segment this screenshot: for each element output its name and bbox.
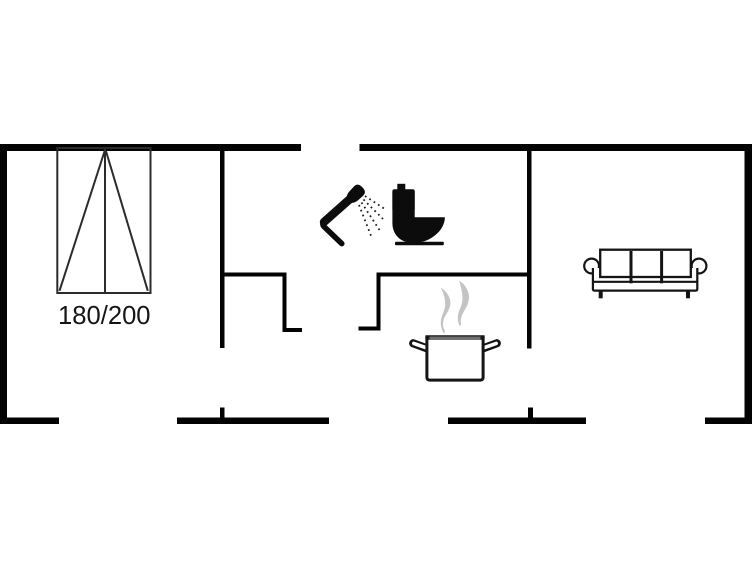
svg-text:180/200: 180/200 <box>58 302 151 330</box>
